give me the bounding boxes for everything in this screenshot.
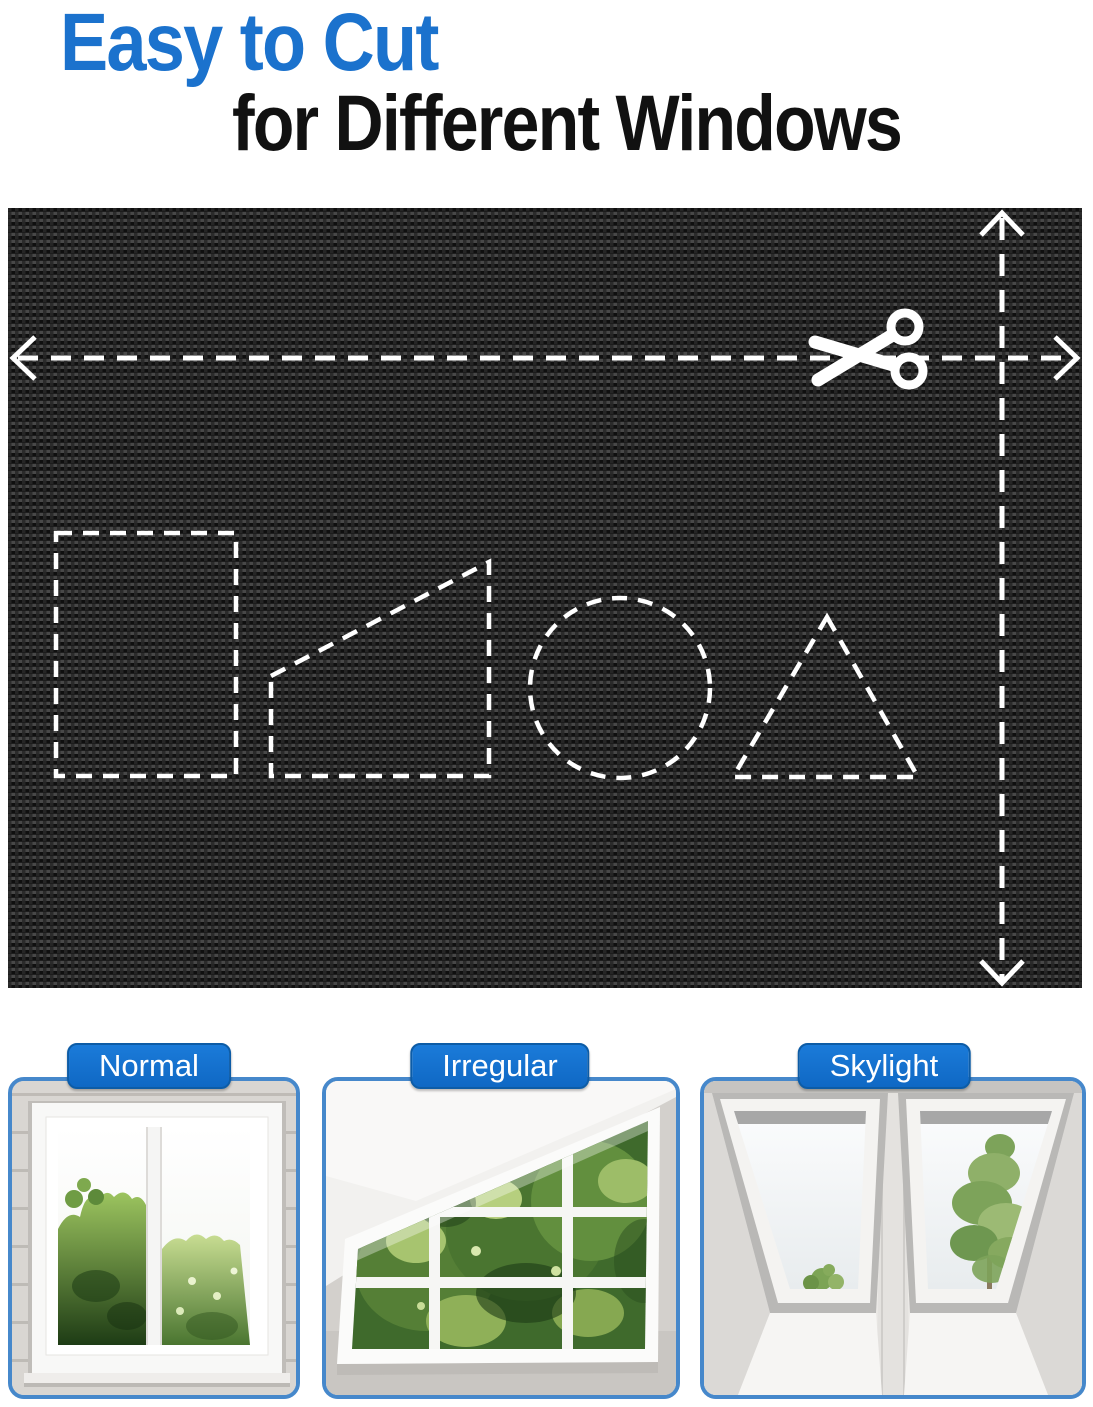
label-irregular: Irregular bbox=[410, 1043, 589, 1089]
cut-lines-overlay bbox=[8, 208, 1082, 988]
cut-shape-trapezoid bbox=[271, 562, 489, 776]
window-photo-normal bbox=[8, 1077, 300, 1399]
cut-shape-rectangle bbox=[56, 533, 236, 776]
product-infographic: Easy to Cut for Different Windows bbox=[0, 0, 1093, 1407]
page-subtitle: for Different Windows bbox=[232, 82, 901, 165]
label-skylight: Skylight bbox=[798, 1043, 971, 1089]
skylight-window-illustration bbox=[704, 1081, 1082, 1395]
cut-shape-triangle bbox=[733, 617, 918, 777]
window-photo-irregular bbox=[322, 1077, 680, 1399]
window-photo-skylight bbox=[700, 1077, 1086, 1399]
arrow-down-icon bbox=[981, 961, 1023, 983]
vertical-cut-line bbox=[981, 213, 1023, 983]
fabric-panel bbox=[8, 208, 1082, 988]
irregular-window-illustration bbox=[326, 1081, 676, 1395]
scissors-icon bbox=[815, 313, 923, 385]
label-normal: Normal bbox=[67, 1043, 231, 1089]
cut-shape-circle bbox=[530, 598, 710, 778]
page-title: Easy to Cut bbox=[60, 0, 438, 86]
normal-window-illustration bbox=[12, 1081, 296, 1395]
